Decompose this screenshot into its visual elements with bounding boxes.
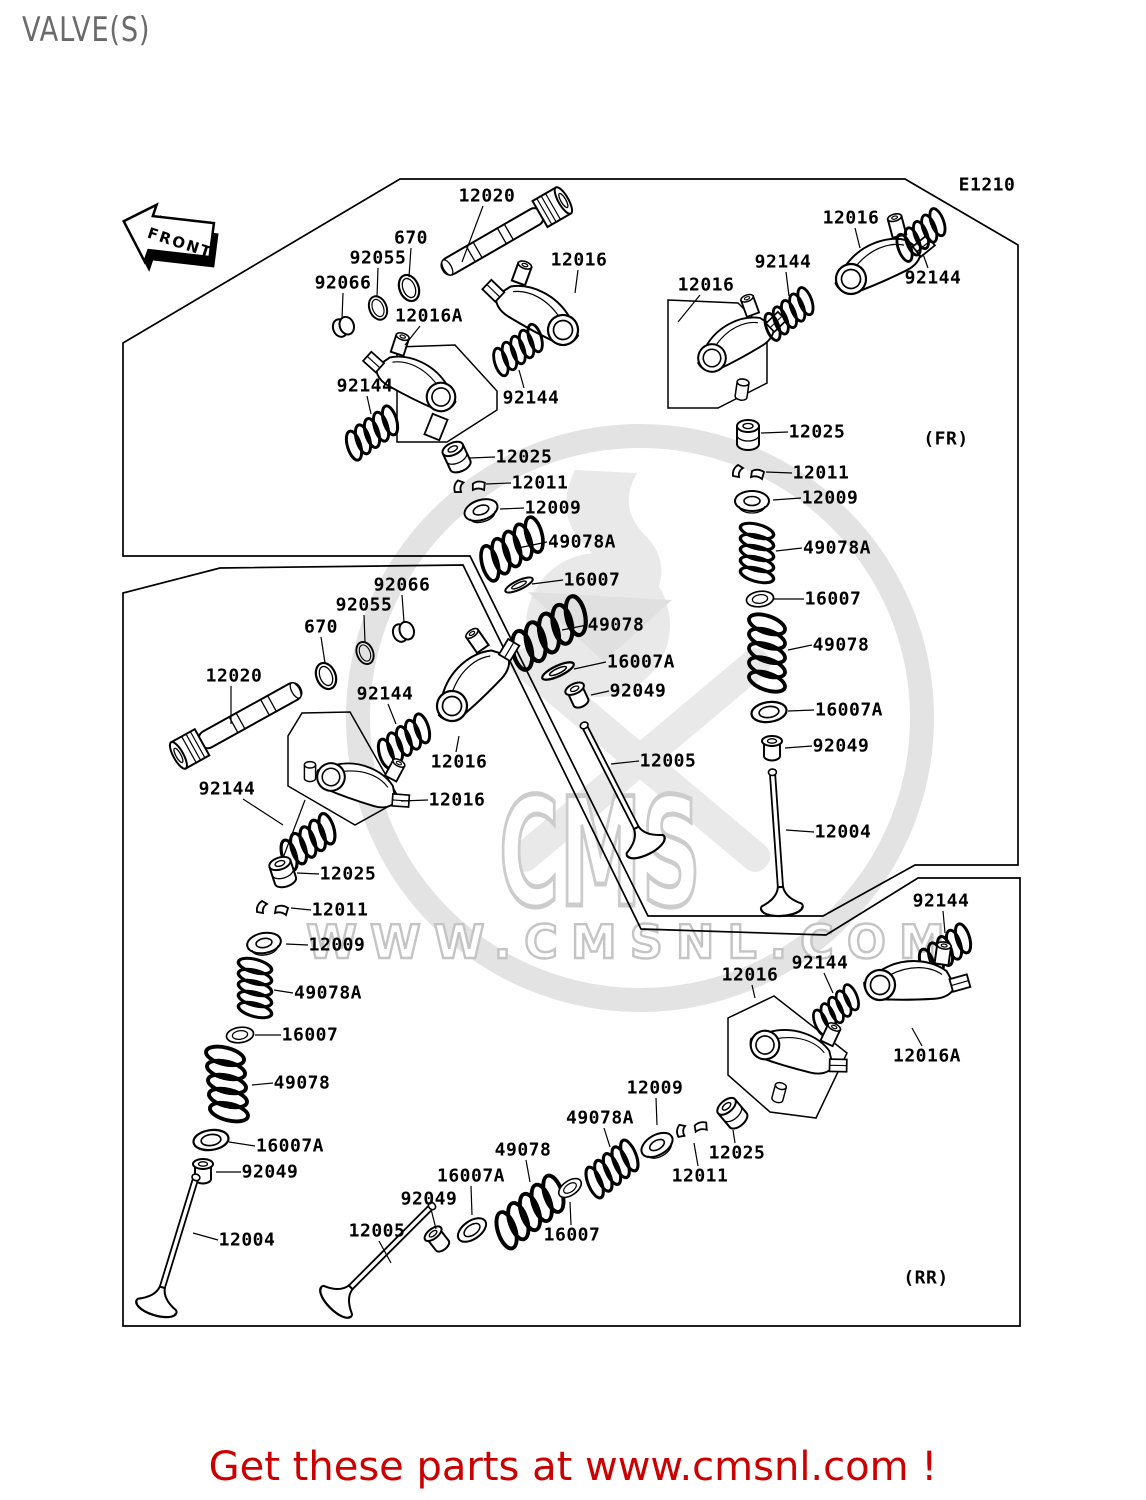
part-label-12009: 12009 [309, 935, 366, 956]
cap-92066-part [331, 315, 357, 339]
part-label-12016: 12016 [678, 275, 735, 296]
valve-seal-92049-part [422, 1224, 453, 1256]
leader-line-92049 [785, 746, 812, 748]
leader-line-12011 [291, 908, 311, 910]
camshaft-bolt-12020-part [167, 675, 307, 771]
part-label-12009: 12009 [627, 1078, 684, 1099]
leader-line-92144 [367, 396, 371, 414]
part-label-12009: 12009 [525, 498, 582, 519]
part-label-49078A: 49078A [294, 983, 362, 1004]
part-label-92055: 92055 [336, 595, 393, 616]
part-label-92144: 92144 [913, 891, 970, 912]
leader-line-12016A [912, 1028, 922, 1046]
tappet-12025-part [268, 854, 298, 889]
part-label-92144: 92144 [905, 268, 962, 289]
leader-line-670 [409, 248, 411, 277]
part-label-92144: 92144 [199, 779, 256, 800]
leader-line-16007A [229, 1142, 255, 1146]
spring-retainer-12009-part [246, 930, 283, 958]
part-label-12011: 12011 [312, 900, 369, 921]
leader-line-16007A [471, 1186, 472, 1215]
leader-line-92066 [402, 595, 404, 622]
spring-seat-16007A-part [750, 700, 788, 725]
part-label-92144: 92144 [357, 684, 414, 705]
spring-seat-16007A-part [192, 1128, 230, 1153]
part-label-49078: 49078 [588, 615, 645, 636]
part-label-92049: 92049 [242, 1162, 299, 1183]
spring-49078A-part [738, 520, 775, 586]
leader-line-92144 [824, 973, 833, 993]
leader-line-49078 [788, 645, 812, 650]
leader-line-12016 [678, 295, 700, 322]
leader-line-12009 [500, 508, 524, 509]
leader-line-92144 [519, 370, 524, 388]
pivot-cylinder-part [771, 1082, 787, 1104]
part-label-92144: 92144 [755, 252, 812, 273]
leader-line-92066 [342, 293, 343, 319]
part-label-92144: 92144 [503, 388, 560, 409]
cmsnl-caption: Get these parts at www.cmsnl.com ! [0, 1444, 1146, 1490]
spring-49078-part [747, 610, 788, 695]
valve-seal-92049-part [762, 736, 782, 761]
part-label-16007: 16007 [805, 589, 862, 610]
part-label-92055: 92055 [350, 248, 407, 269]
leader-line-49078A [776, 548, 802, 551]
pivot-cylinder-part [304, 762, 315, 782]
part-label-16007A: 16007A [815, 700, 883, 721]
rocker-arm-12016-part [682, 285, 794, 376]
part-label-12004: 12004 [219, 1230, 276, 1251]
pivot-cylinder-part [735, 378, 750, 401]
leader-line-16007A [788, 710, 814, 711]
leader-line-12016 [855, 228, 860, 248]
valve-12004-part [134, 1168, 217, 1321]
spring-seat-16007-part [555, 1175, 584, 1201]
part-label-16007A: 16007A [607, 652, 675, 673]
part-label-670: 670 [304, 617, 338, 638]
tappet-12025-part [714, 1095, 750, 1132]
part-label-12025: 12025 [709, 1143, 766, 1164]
spring-49078A-part [236, 955, 273, 1021]
leader-line-12004 [786, 830, 814, 832]
leader-line-49078A [274, 990, 293, 993]
part-label-12005: 12005 [349, 1221, 406, 1242]
leader-line-12016 [456, 736, 459, 752]
spring-seat-16007-part [225, 1026, 254, 1045]
valve-keepers-12011-part [675, 1116, 709, 1140]
spring-retainer-12009-part [735, 491, 769, 513]
part-label-12025: 12025 [320, 864, 377, 885]
leader-line-670 [321, 637, 325, 663]
tappet-12025-part [440, 439, 473, 475]
part-label-12016: 12016 [429, 790, 486, 811]
leader-line-49078A [604, 1128, 610, 1147]
part-label-49078A: 49078A [548, 532, 616, 553]
leader-line-12016 [575, 270, 578, 293]
part-label-12009: 12009 [802, 488, 859, 509]
watermark-url-text: WWW.CMSNL.COM [306, 915, 958, 969]
part-label-16007: 16007 [564, 570, 621, 591]
leader-line-12009 [656, 1098, 657, 1125]
part-label-12025: 12025 [789, 422, 846, 443]
leader-line-92144 [243, 799, 283, 825]
part-label-92144: 92144 [792, 953, 849, 974]
leader-line-16007 [570, 1202, 571, 1225]
part-label-12011: 12011 [512, 473, 569, 494]
part-label-12005: 12005 [640, 751, 697, 772]
part-label-49078A: 49078A [803, 538, 871, 559]
oring-670-part [312, 660, 340, 692]
valve-keepers-12011-part [257, 901, 288, 915]
leader-line-12004 [193, 1233, 218, 1240]
leader-line-49078 [252, 1083, 273, 1085]
part-label-12011: 12011 [672, 1166, 729, 1187]
spring-49078A-part [575, 1135, 649, 1204]
spring-seat-16007A-part [454, 1213, 491, 1246]
part-label-12011: 12011 [793, 463, 850, 484]
leader-line-92144 [388, 704, 396, 724]
part-label-92049: 92049 [401, 1189, 458, 1210]
front-direction-arrow: FRONT [113, 198, 225, 287]
part-label-12020: 12020 [459, 186, 516, 207]
part-label-670: 670 [394, 228, 428, 249]
rocker-arm-12016-part [745, 994, 863, 1094]
part-label-92066: 92066 [374, 575, 431, 596]
part-label-(FR): (FR) [923, 429, 968, 450]
part-label-92066: 92066 [315, 273, 372, 294]
leader-line-92144 [786, 272, 789, 296]
leader-line-12025 [733, 1130, 735, 1143]
spring-49078-part [203, 1041, 251, 1128]
part-label-49078: 49078 [274, 1073, 331, 1094]
part-label-12016: 12016 [722, 965, 779, 986]
part-label-16007: 16007 [282, 1025, 339, 1046]
leader-line-49078 [526, 1160, 530, 1182]
rocker-arm-12016A-part [356, 324, 471, 415]
part-label-92049: 92049 [610, 681, 667, 702]
part-label-12016: 12016 [431, 752, 488, 773]
leader-line-12025 [297, 873, 319, 874]
part-label-(RR): (RR) [903, 1268, 948, 1289]
leader-line-12009 [286, 944, 308, 945]
oring-92055-part [366, 294, 391, 323]
part-label-49078A: 49078A [566, 1108, 634, 1129]
spring-retainer-12009-part [637, 1128, 677, 1164]
part-label-49078: 49078 [813, 635, 870, 656]
leader-line-12009 [773, 498, 801, 500]
part-label-92049: 92049 [813, 736, 870, 757]
exploded-parts-diagram: CMS WWW.CMSNL.COM [0, 0, 1146, 1500]
part-label-92144: 92144 [337, 376, 394, 397]
part-label-12016A: 12016A [893, 1046, 961, 1067]
part-label-12016A: 12016A [395, 306, 463, 327]
part-label-12020: 12020 [206, 666, 263, 687]
rocker-shim-part [424, 414, 447, 440]
parts-diagram-page: VALVE(S) CMS WWW.CMSNL.COM [0, 0, 1146, 1500]
part-label-E1210: E1210 [959, 175, 1016, 196]
part-label-16007A: 16007A [437, 1166, 505, 1187]
part-label-12004: 12004 [815, 822, 872, 843]
leader-line-92049 [431, 1209, 436, 1229]
leader-line-12025 [761, 432, 788, 433]
part-label-16007A: 16007A [256, 1136, 324, 1157]
tappet-12025-part [737, 420, 759, 450]
leader-line-92055 [377, 268, 378, 297]
leader-lines-layer [193, 206, 945, 1263]
leader-line-12025 [470, 457, 495, 458]
part-label-49078: 49078 [495, 1140, 552, 1161]
leader-line-92144 [923, 254, 928, 268]
cap-92066-part [391, 620, 417, 644]
part-label-16007: 16007 [544, 1225, 601, 1246]
part-label-12016: 12016 [823, 208, 880, 229]
leader-line-12011 [694, 1143, 698, 1166]
part-label-12016: 12016 [551, 250, 608, 271]
part-label-12025: 12025 [496, 447, 553, 468]
spring-seat-16007-part [745, 590, 774, 609]
